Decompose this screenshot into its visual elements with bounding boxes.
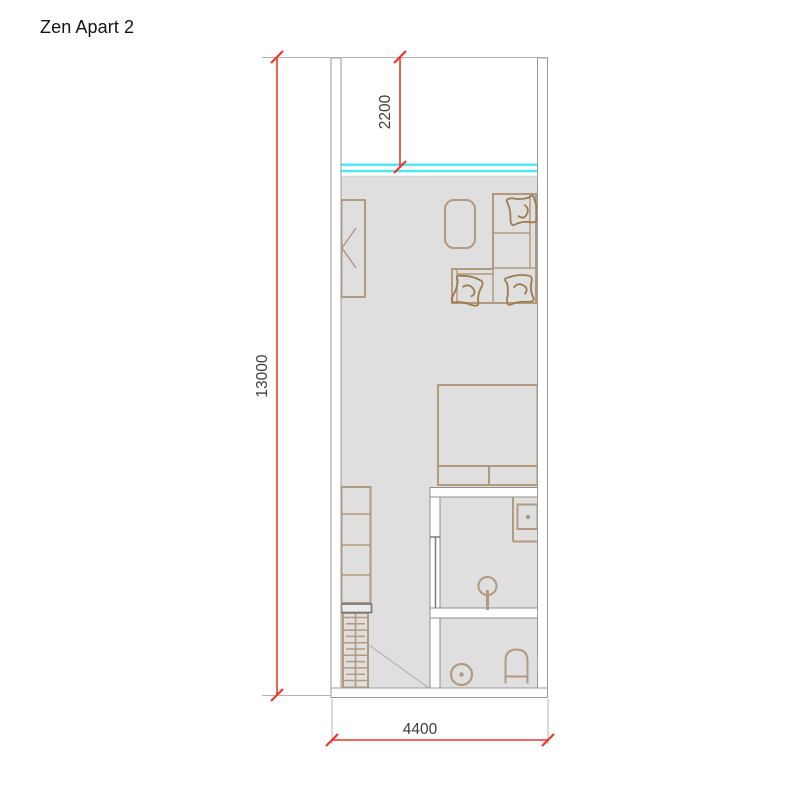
floor-plan-canvas: Zen Apart 2 xyxy=(0,0,800,800)
dim-height-label: 13000 xyxy=(254,354,271,397)
window-glazing xyxy=(342,164,538,177)
dim-width-label: 4400 xyxy=(403,721,438,738)
right-wall xyxy=(538,58,548,695)
bathroom-top-wall xyxy=(430,488,548,498)
dim-balcony-label: 2200 xyxy=(377,94,394,129)
stair-threshold xyxy=(342,604,372,613)
floor-plan: 13000 2200 4400 xyxy=(0,0,800,800)
bottom-wall xyxy=(331,688,548,698)
left-wall xyxy=(331,58,341,695)
